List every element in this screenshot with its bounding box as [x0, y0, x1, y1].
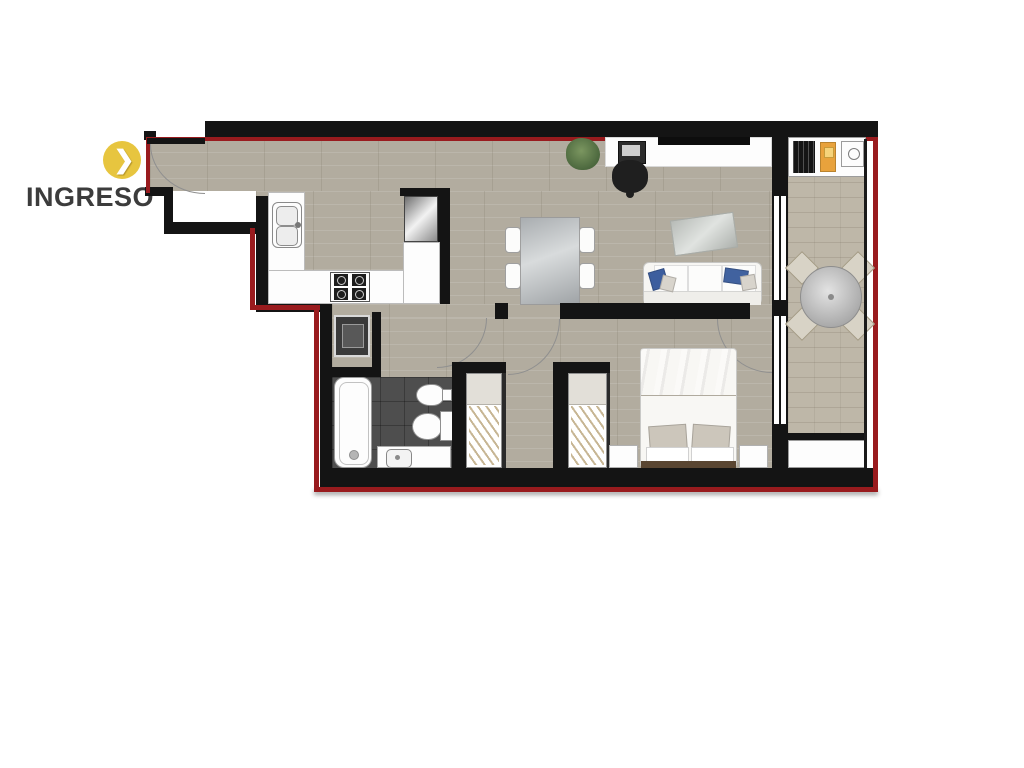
- dining-chair: [579, 227, 595, 253]
- burner: [352, 274, 366, 286]
- dining-chair: [505, 263, 521, 289]
- tray-item: [824, 147, 834, 158]
- bathtub-drain: [349, 450, 359, 460]
- nightstand-left: [609, 445, 638, 468]
- sofa-cushion: [688, 265, 722, 293]
- double-bed: [640, 348, 737, 468]
- outdoor-sink: [841, 141, 864, 167]
- burner: [334, 274, 348, 286]
- round-table: [800, 266, 862, 328]
- dining-table: [520, 217, 580, 305]
- dining-chair: [505, 227, 521, 253]
- wall-closet2-left: [553, 362, 568, 468]
- wall-bathroom-top: [326, 367, 381, 377]
- plant: [566, 138, 600, 170]
- burner: [334, 288, 348, 300]
- wall-bottom: [320, 468, 878, 487]
- closet-shelf: [569, 374, 606, 405]
- bidet-tap: [442, 389, 452, 401]
- laptop-screen: [622, 145, 640, 156]
- kitchen-counter-right: [403, 242, 440, 304]
- wall-bathroom-left: [320, 302, 332, 487]
- outline-kitchen-left: [250, 228, 255, 310]
- balcony-railing: [864, 139, 867, 468]
- balcony-sliding-door-window: [772, 196, 788, 300]
- wall-divider: [560, 303, 750, 319]
- wall-balcony-partition-mid: [772, 300, 788, 316]
- bbq-grill: [793, 141, 815, 173]
- wall-closet1-left: [452, 362, 466, 468]
- wall-closet2-top: [553, 362, 610, 373]
- outdoor-sink-faucet: [848, 148, 860, 160]
- bbq-tray: [820, 142, 836, 172]
- closet-shelf: [467, 374, 501, 405]
- wall-planter-top: [788, 433, 866, 440]
- entry-label: INGRESO: [26, 182, 156, 213]
- office-chair-stem: [626, 190, 634, 198]
- bed-blanket: [641, 349, 736, 396]
- sofa-pillow-gray: [740, 274, 757, 291]
- bedroom-closet: [568, 373, 607, 468]
- outline-bottom: [314, 487, 878, 492]
- bedroom-window: [772, 316, 788, 424]
- entry-arrow-icon: ❯: [103, 141, 141, 179]
- wall-kitchen-left: [256, 196, 268, 312]
- chevron-right-icon: ❯: [114, 148, 135, 173]
- hall-closet: [466, 373, 502, 468]
- wall-balcony-partition-bottom: [772, 424, 788, 468]
- sink-bowl-bottom: [276, 226, 298, 246]
- closet-hanging-rod: [469, 406, 499, 465]
- office-chair: [612, 160, 648, 193]
- burner: [352, 288, 366, 300]
- outline-step: [250, 305, 320, 310]
- outline-right: [873, 137, 878, 492]
- wall-closet1-top: [452, 362, 506, 373]
- stove: [330, 272, 370, 302]
- sink-faucet: [295, 222, 301, 228]
- washing-machine: [334, 315, 370, 357]
- vanity-counter: [377, 446, 451, 468]
- closet-hanging-rod: [571, 406, 604, 465]
- toilet-bowl: [412, 413, 442, 440]
- tv: [658, 137, 750, 145]
- outline-bath-left: [314, 305, 319, 492]
- nightstand-right: [739, 445, 768, 468]
- washing-machine-door: [342, 324, 364, 348]
- bed-headboard: [641, 461, 736, 468]
- vanity-faucet: [395, 455, 400, 460]
- round-table-center: [828, 294, 834, 300]
- dining-chair: [579, 263, 595, 289]
- wall-kitchen-right: [440, 188, 450, 304]
- floor-plan-canvas: ❯ INGRESO: [0, 0, 1024, 768]
- wall-divider-left-stub: [495, 303, 508, 319]
- balcony-planter: [788, 440, 866, 468]
- wall-closet1-right-line: [502, 373, 506, 468]
- refrigerator: [404, 196, 438, 242]
- bathtub: [334, 377, 372, 468]
- bidet: [416, 384, 444, 406]
- wall-balcony-partition-top: [772, 135, 788, 196]
- kitchen-sink: [272, 202, 302, 248]
